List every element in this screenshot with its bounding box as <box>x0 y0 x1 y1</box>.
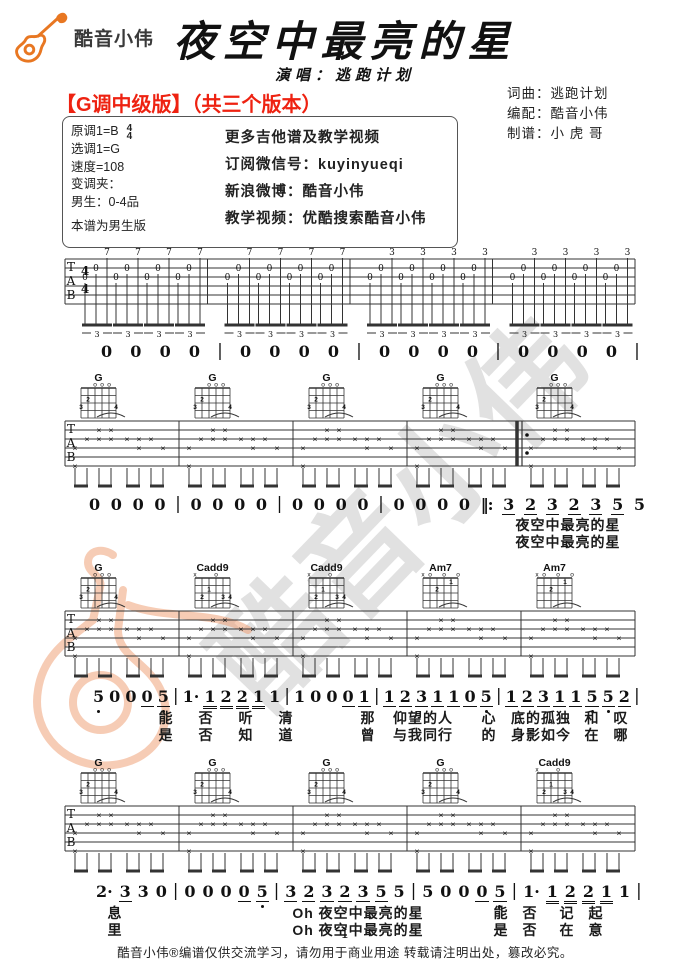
svg-text:×: × <box>97 434 102 444</box>
jianpu-token: 1 <box>553 687 566 707</box>
svg-text:3: 3 <box>156 330 161 339</box>
jianpu-token: 3 <box>119 882 132 902</box>
svg-text:×: × <box>389 443 394 453</box>
svg-text:×: × <box>313 624 318 634</box>
svg-text:3: 3 <box>79 594 83 601</box>
svg-text:0: 0 <box>256 273 262 283</box>
svg-text:×: × <box>593 633 598 643</box>
svg-text:×: × <box>161 443 166 453</box>
svg-text:×: × <box>581 624 586 634</box>
svg-text:×: × <box>389 633 394 643</box>
capo-male-line: 男生：0-4品 <box>71 194 146 212</box>
jianpu-token: 5 <box>611 495 624 515</box>
jianpu-token: 0 <box>124 687 137 706</box>
jianpu-token: 0 <box>517 342 530 361</box>
jianpu-token: 5 <box>633 495 646 514</box>
svg-text:×: × <box>251 828 256 838</box>
jianpu-token: 1· <box>522 882 541 901</box>
svg-text:×: × <box>389 828 394 838</box>
credit-composer: 词曲：逃跑计划 <box>507 84 609 104</box>
svg-text:Cadd9: Cadd9 <box>538 757 570 769</box>
tempo-line: 速度=108 <box>71 159 146 177</box>
svg-text:×: × <box>109 624 114 634</box>
svg-text:A: A <box>66 274 76 288</box>
svg-text:×: × <box>541 819 546 829</box>
promo-line: 更多吉他谱及教学视频 <box>225 125 427 152</box>
svg-text:4: 4 <box>114 594 118 601</box>
barline: | <box>496 687 502 706</box>
jianpu-token: 1 <box>383 687 396 707</box>
jianpu-token: 0 <box>342 687 355 707</box>
jianpu-token: 0 <box>239 342 252 361</box>
performer-line: 演唱：逃跑计划 <box>150 64 540 85</box>
svg-text:3: 3 <box>79 404 83 411</box>
svg-text:3: 3 <box>307 404 311 411</box>
jianpu-row-intro: 0000|0000|0000|0000| <box>100 342 640 361</box>
svg-text:×: × <box>73 828 78 838</box>
jianpu-token: 0 <box>153 495 166 514</box>
svg-text:3: 3 <box>335 594 339 601</box>
jianpu-token: 3 <box>589 495 602 515</box>
svg-text:×: × <box>605 624 610 634</box>
jianpu-token: 2 <box>521 687 534 707</box>
svg-text:2: 2 <box>428 397 432 404</box>
svg-text:×: × <box>541 624 546 634</box>
svg-text:×: × <box>503 828 508 838</box>
jianpu-token: 1 <box>546 882 559 904</box>
jianpu-token: 3 <box>502 495 515 515</box>
jianpu-token: 2 <box>399 687 412 707</box>
svg-text:×: × <box>211 624 216 634</box>
svg-text:×: × <box>325 819 330 829</box>
svg-text:×: × <box>125 819 130 829</box>
chord-diagram-G: Gooo324 <box>193 372 232 418</box>
jianpu-token: 0 <box>546 342 559 361</box>
svg-text:2: 2 <box>86 397 90 404</box>
svg-text:0: 0 <box>124 264 130 274</box>
jianpu-token: 3 <box>415 687 428 707</box>
svg-text:3: 3 <box>421 404 425 411</box>
svg-text:T: T <box>67 422 75 436</box>
svg-text:3: 3 <box>125 330 130 339</box>
jianpu-token: 2 <box>568 495 581 515</box>
lyric-verse-1: 哪 <box>614 725 629 745</box>
svg-text:3: 3 <box>237 330 242 339</box>
brand-logo: 酷音小伟 <box>12 8 154 66</box>
svg-text:×: × <box>377 819 382 829</box>
guitar-logo-icon <box>12 8 70 66</box>
svg-text:×: × <box>553 819 558 829</box>
svg-text:2: 2 <box>200 397 204 404</box>
svg-text:×: × <box>581 819 586 829</box>
jianpu-token: 0 <box>238 882 251 902</box>
svg-text:×: × <box>617 828 622 838</box>
svg-text:0: 0 <box>367 273 373 283</box>
svg-text:×: × <box>617 633 622 643</box>
jianpu-token: 0 <box>325 687 338 706</box>
svg-text:0: 0 <box>378 264 384 274</box>
svg-text:×: × <box>415 443 420 453</box>
jianpu-token: 2 <box>236 687 249 709</box>
jianpu-token: 0 <box>437 342 450 361</box>
svg-text:×: × <box>313 819 318 829</box>
svg-text:×: × <box>109 819 114 829</box>
song-title: 夜空中最亮的星 <box>150 8 540 69</box>
svg-text:×: × <box>275 828 280 838</box>
jianpu-token: 0 <box>576 342 589 361</box>
jianpu-token: 1 <box>618 882 631 901</box>
jianpu-token: 0 <box>110 495 123 514</box>
contact-info: 更多吉他谱及教学视频 订阅微信号：kuyinyueqi 新浪微博：酷音小伟 教学… <box>225 125 427 233</box>
jianpu-token: 0 <box>457 882 470 901</box>
jianpu-token: 0 <box>463 687 476 707</box>
svg-text:1: 1 <box>449 579 453 586</box>
credit-engraver: 制谱：小 虎 哥 <box>507 124 609 144</box>
jianpu-token: 0 <box>356 495 369 514</box>
wechat-line: 订阅微信号：kuyinyueqi <box>225 152 427 179</box>
credits-block: 词曲：逃跑计划 编配：酷音小伟 制谱：小 虎 哥 <box>507 84 609 144</box>
jianpu-token: 0 <box>183 882 196 901</box>
svg-text:×: × <box>415 828 420 838</box>
svg-text:3: 3 <box>379 330 384 339</box>
svg-text:3: 3 <box>268 330 273 339</box>
svg-text:3: 3 <box>410 330 415 339</box>
chord-diagram-G: Gooo324 <box>79 372 118 418</box>
jianpu-token: 0 <box>436 495 449 514</box>
jianpu-row-verse: 50005|1·12211|10001|1231105|12311552| <box>92 687 640 709</box>
jianpu-token: 3 <box>537 687 550 707</box>
svg-text:×: × <box>491 434 496 444</box>
svg-text:3: 3 <box>615 330 620 339</box>
svg-text:×: × <box>199 819 204 829</box>
svg-text:0: 0 <box>471 264 477 274</box>
svg-text:3: 3 <box>193 789 197 796</box>
svg-text:×: × <box>439 624 444 634</box>
jianpu-token: 2 <box>302 882 315 902</box>
svg-text:2: 2 <box>86 587 90 594</box>
jianpu-token: 2· <box>95 882 114 901</box>
jianpu-token: 0 <box>268 342 281 361</box>
svg-text:3: 3 <box>441 330 446 339</box>
svg-text:4: 4 <box>228 404 232 411</box>
lyric-verse-1: 道 <box>279 725 294 745</box>
jianpu-token: 1 <box>203 687 216 709</box>
jianpu-token: 0 <box>219 882 232 901</box>
jianpu-token: 0 <box>159 342 172 361</box>
svg-text:3: 3 <box>94 330 99 339</box>
svg-text:×: × <box>73 443 78 453</box>
svg-text:×: × <box>365 443 370 453</box>
svg-text:×: × <box>85 434 90 444</box>
svg-text:4: 4 <box>456 789 460 796</box>
jianpu-token: 0 <box>327 342 340 361</box>
svg-text:3: 3 <box>594 248 600 258</box>
svg-text:3: 3 <box>299 330 304 339</box>
svg-text:×: × <box>541 434 546 444</box>
svg-text:7: 7 <box>309 248 315 258</box>
chord-diagram-G: Gooo324 <box>307 757 346 803</box>
svg-text:1: 1 <box>549 782 553 789</box>
svg-text:×: × <box>529 443 534 453</box>
svg-text:×: × <box>365 828 370 838</box>
barline: | <box>173 687 179 706</box>
svg-text:×: × <box>211 819 216 829</box>
svg-text:×: × <box>565 624 570 634</box>
jianpu-token: 0 <box>298 342 311 361</box>
svg-text:×: × <box>239 819 244 829</box>
svg-text:×: × <box>85 624 90 634</box>
svg-text:7: 7 <box>197 248 203 258</box>
svg-text:3: 3 <box>451 248 457 258</box>
jianpu-token: 5 <box>480 687 493 707</box>
svg-text:7: 7 <box>278 248 284 258</box>
svg-text:Cadd9: Cadd9 <box>196 562 228 574</box>
lyric-verse-1: 知 <box>239 725 254 745</box>
svg-text:×: × <box>451 624 456 634</box>
svg-text:×: × <box>137 828 142 838</box>
original-key-line: 原调1=B44 <box>71 123 146 141</box>
svg-text:1: 1 <box>321 587 325 594</box>
svg-text:4: 4 <box>228 789 232 796</box>
svg-text:×: × <box>467 434 472 444</box>
chord-diagram-G: Gooo324 <box>421 757 460 803</box>
credit-arranger: 编配：酷音小伟 <box>507 104 609 124</box>
svg-text:×: × <box>377 434 382 444</box>
barline: | <box>217 342 223 361</box>
svg-text:0: 0 <box>521 264 527 274</box>
lyric-verse-1: 否 <box>199 725 214 745</box>
svg-text:4: 4 <box>228 594 232 601</box>
svg-text:×: × <box>199 624 204 634</box>
barline: | <box>374 687 380 706</box>
svg-text:0: 0 <box>113 273 119 283</box>
svg-text:0: 0 <box>440 264 446 274</box>
svg-text:×: × <box>97 624 102 634</box>
original-key: 原调1=B <box>71 124 119 138</box>
repeat-sign: ‖: <box>480 495 494 514</box>
chord-diagram-G: Gooo324 <box>79 757 118 803</box>
jianpu-token: 1 <box>600 882 613 904</box>
svg-text:0: 0 <box>155 264 161 274</box>
svg-text:2: 2 <box>542 397 546 404</box>
svg-text:×: × <box>223 434 228 444</box>
svg-text:×: × <box>529 828 534 838</box>
svg-text:0: 0 <box>541 273 547 283</box>
svg-text:0: 0 <box>267 264 273 274</box>
svg-text:×: × <box>125 624 130 634</box>
svg-text:×: × <box>125 434 130 444</box>
svg-text:×: × <box>581 434 586 444</box>
jianpu-token: 0 <box>132 495 145 514</box>
svg-text:0: 0 <box>329 264 335 274</box>
jianpu-token: 5 <box>421 882 434 901</box>
barline: | <box>511 882 517 901</box>
svg-text:4: 4 <box>570 789 574 796</box>
svg-text:×: × <box>313 434 318 444</box>
svg-text:T: T <box>67 807 75 821</box>
svg-text:×: × <box>149 624 154 634</box>
svg-text:×: × <box>223 624 228 634</box>
svg-text:0: 0 <box>236 264 242 274</box>
svg-text:×: × <box>415 633 420 643</box>
page-number: 1 <box>0 926 690 942</box>
tab-system-intro: TAB4400730073007300730073007300730073003… <box>0 245 690 345</box>
svg-text:×: × <box>223 819 228 829</box>
jianpu-token: 0 <box>407 342 420 361</box>
barline: | <box>277 495 283 514</box>
svg-text:3: 3 <box>307 789 311 796</box>
jianpu-token: 0 <box>155 882 168 901</box>
jianpu-token: 2 <box>564 882 577 904</box>
svg-text:4: 4 <box>342 594 346 601</box>
svg-text:4: 4 <box>114 789 118 796</box>
barline: | <box>636 882 642 901</box>
svg-text:×: × <box>137 443 142 453</box>
svg-text:×: × <box>353 819 358 829</box>
svg-text:×: × <box>503 633 508 643</box>
svg-text:×: × <box>593 443 598 453</box>
svg-text:0: 0 <box>572 273 578 283</box>
svg-text:T: T <box>67 260 75 274</box>
info-box: 原调1=B44 选调1=G 速度=108 变调夹： 男生：0-4品 本谱为男生版… <box>62 116 458 248</box>
jianpu-row-entry: 0000|0000|0000|0000‖:3232355 <box>88 495 646 515</box>
jianpu-token: 1 <box>431 687 444 707</box>
jianpu-token: 5 <box>393 882 406 901</box>
svg-text:0: 0 <box>409 264 415 274</box>
svg-text:3: 3 <box>535 404 539 411</box>
svg-text:0: 0 <box>614 264 620 274</box>
chord-diagram-Cadd9: Cadd9xo2134 <box>535 757 574 803</box>
weibo-line: 新浪微博：酷音小伟 <box>225 179 427 206</box>
svg-text:0: 0 <box>144 273 150 283</box>
barline: | <box>495 342 501 361</box>
svg-text:3: 3 <box>389 248 395 258</box>
svg-text:×: × <box>427 624 432 634</box>
jianpu-token: 0 <box>393 495 406 514</box>
jianpu-token: 5 <box>157 687 170 707</box>
chord-diagram-Am7: Am7xooo21 <box>421 562 460 608</box>
svg-text:0: 0 <box>93 264 99 274</box>
jianpu-token: 0 <box>309 687 322 706</box>
jianpu-token: 0 <box>129 342 142 361</box>
jianpu-token: 2 <box>338 882 351 902</box>
svg-text:×: × <box>427 819 432 829</box>
svg-text:×: × <box>337 624 342 634</box>
svg-text:0: 0 <box>552 264 558 274</box>
jianpu-token: 0 <box>605 342 618 361</box>
svg-text:×: × <box>439 434 444 444</box>
jianpu-token: 1 <box>569 687 582 707</box>
svg-text:3: 3 <box>532 248 538 258</box>
tuning-info: 原调1=B44 选调1=G 速度=108 变调夹： 男生：0-4品 本谱为男生版 <box>71 123 146 236</box>
svg-text:×: × <box>479 828 484 838</box>
lyric-verse-1: 与我同行 <box>393 725 453 745</box>
jianpu-token: 5 <box>585 687 598 707</box>
svg-text:3: 3 <box>193 404 197 411</box>
svg-text:×: × <box>187 828 192 838</box>
svg-text:3: 3 <box>584 330 589 339</box>
svg-text:×: × <box>275 633 280 643</box>
sheet-music-page: 酷音小伟 酷音小伟 夜空中最亮的星 演唱：逃跑计划 词曲：逃跑计划 编配：酷音小… <box>0 0 690 976</box>
jianpu-token: 0 <box>201 882 214 901</box>
svg-text:×: × <box>263 434 268 444</box>
jianpu-token: 5 <box>256 882 269 902</box>
svg-text:2: 2 <box>314 594 318 601</box>
svg-text:0: 0 <box>510 273 516 283</box>
svg-text:×: × <box>491 624 496 634</box>
barline: | <box>634 342 640 361</box>
svg-text:×: × <box>553 434 558 444</box>
barline: | <box>175 495 181 514</box>
jianpu-token: 5 <box>375 882 388 902</box>
jianpu-token: 0 <box>466 342 479 361</box>
svg-text:2: 2 <box>542 789 546 796</box>
svg-text:1: 1 <box>207 587 211 594</box>
svg-text:×: × <box>85 819 90 829</box>
svg-text:4: 4 <box>342 404 346 411</box>
svg-text:2: 2 <box>428 782 432 789</box>
svg-text:0: 0 <box>175 273 181 283</box>
play-key-line: 选调1=G <box>71 141 146 159</box>
svg-text:×: × <box>353 624 358 634</box>
svg-text:×: × <box>251 633 256 643</box>
svg-text:B: B <box>67 288 76 302</box>
svg-text:7: 7 <box>104 248 110 258</box>
svg-text:0: 0 <box>398 273 404 283</box>
svg-text:3: 3 <box>79 789 83 796</box>
svg-text:×: × <box>337 819 342 829</box>
svg-text:3: 3 <box>563 248 569 258</box>
jianpu-token: 3 <box>356 882 369 902</box>
svg-text:×: × <box>301 828 306 838</box>
jianpu-token: 1 <box>358 687 371 707</box>
svg-text:×: × <box>451 819 456 829</box>
svg-text:×: × <box>301 443 306 453</box>
svg-text:7: 7 <box>166 248 172 258</box>
svg-text:3: 3 <box>420 248 426 258</box>
version-heading: 【G调中级版】（共三个版本） <box>56 88 322 117</box>
jianpu-token: 1· <box>182 687 201 706</box>
svg-text:3: 3 <box>563 789 567 796</box>
jianpu-token: 0 <box>439 882 452 901</box>
lyric-verse-1: 是 <box>159 725 174 745</box>
svg-text:T: T <box>67 612 75 626</box>
barline: | <box>173 882 179 901</box>
jianpu-token: 0 <box>291 495 304 514</box>
chord-diagram-G: Gooo324 <box>421 372 460 418</box>
tab-system-2: Gooo324Gooo324Gooo324Gooo324Gooo324TAB××… <box>0 372 690 498</box>
svg-text:Cadd9: Cadd9 <box>310 562 342 574</box>
svg-text:×: × <box>325 434 330 444</box>
svg-text:2: 2 <box>86 782 90 789</box>
svg-text:0: 0 <box>225 273 231 283</box>
jianpu-token: 0 <box>190 495 203 514</box>
svg-text:×: × <box>199 434 204 444</box>
edition-note: 本谱为男生版 <box>71 218 146 236</box>
jianpu-token: 5 <box>493 882 506 902</box>
svg-text:Am7: Am7 <box>543 562 566 574</box>
svg-text:×: × <box>451 434 456 444</box>
chord-diagram-G: Gooo324 <box>307 372 346 418</box>
svg-text:0: 0 <box>186 264 192 274</box>
svg-text:×: × <box>553 624 558 634</box>
chord-diagram-Cadd9: Cadd9xo2134 <box>193 562 232 608</box>
jianpu-token: 0 <box>141 687 154 707</box>
svg-text:2: 2 <box>314 397 318 404</box>
jianpu-token: 1 <box>447 687 460 707</box>
svg-text:×: × <box>251 443 256 453</box>
svg-text:×: × <box>337 434 342 444</box>
